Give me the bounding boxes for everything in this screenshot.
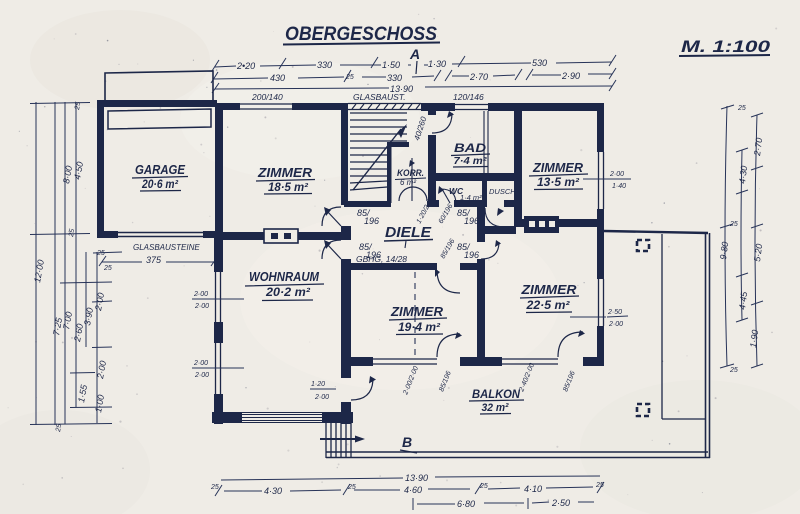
svg-text:ZIMMER: ZIMMER [390, 304, 444, 319]
svg-text:OBERGESCHOSS: OBERGESCHOSS [285, 23, 437, 45]
svg-text:1·50: 1·50 [382, 60, 400, 70]
svg-text:B: B [402, 434, 412, 450]
svg-text:19·4 m²: 19·4 m² [398, 322, 441, 334]
svg-text:2·00: 2·00 [193, 291, 208, 298]
svg-text:20·6 m²: 20·6 m² [141, 179, 179, 191]
svg-text:GBHG, 14/28: GBHG, 14/28 [356, 254, 407, 264]
svg-text:25: 25 [347, 484, 356, 491]
svg-text:4·10: 4·10 [524, 484, 542, 494]
svg-text:GLASBAUSTEINE: GLASBAUSTEINE [133, 243, 200, 252]
svg-text:20·2 m²: 20·2 m² [265, 285, 311, 299]
svg-text:200/140: 200/140 [251, 92, 283, 102]
svg-text:196: 196 [464, 250, 479, 260]
svg-text:196: 196 [364, 216, 379, 226]
svg-text:A: A [409, 46, 420, 62]
svg-text:25: 25 [737, 105, 746, 112]
svg-text:430: 430 [270, 73, 285, 83]
svg-text:25: 25 [345, 74, 354, 81]
svg-text:2·00: 2·00 [608, 321, 623, 328]
svg-text:2·00: 2·00 [609, 171, 624, 178]
svg-text:2·70: 2·70 [469, 72, 488, 82]
svg-text:32 m²: 32 m² [482, 402, 509, 414]
svg-text:4·30: 4·30 [264, 486, 282, 496]
svg-text:13·5 m²: 13·5 m² [537, 177, 580, 189]
svg-text:1·30: 1·30 [428, 59, 446, 69]
svg-text:6·80: 6·80 [457, 499, 475, 509]
svg-text:GLASBAUST.: GLASBAUST. [353, 92, 406, 102]
svg-text:25: 25 [729, 221, 738, 228]
svg-text:WOHNRAUM: WOHNRAUM [249, 269, 320, 284]
svg-text:2·50: 2·50 [607, 309, 622, 316]
svg-text:BAD: BAD [454, 141, 486, 155]
svg-text:2·50: 2·50 [551, 498, 570, 508]
svg-text:BALKON: BALKON [472, 387, 520, 401]
svg-text:GARAGE: GARAGE [135, 162, 185, 177]
svg-text:1·20: 1·20 [311, 381, 325, 388]
svg-text:2·90: 2·90 [561, 71, 580, 81]
svg-text:25: 25 [210, 484, 219, 491]
svg-text:2·00: 2·00 [194, 303, 209, 310]
svg-text:330: 330 [387, 73, 402, 83]
svg-text:2·00: 2·00 [193, 360, 208, 367]
svg-text:25: 25 [103, 265, 112, 272]
svg-text:M. 1:100: M. 1:100 [681, 38, 771, 56]
svg-text:25: 25 [729, 367, 738, 374]
svg-text:ZIMMER: ZIMMER [532, 160, 584, 175]
svg-text:18·5 m²: 18·5 m² [268, 182, 309, 194]
svg-text:330: 330 [317, 60, 332, 70]
svg-text:25: 25 [479, 483, 488, 490]
svg-text:2•20: 2•20 [236, 61, 255, 71]
svg-text:2·00: 2·00 [194, 372, 209, 379]
svg-text:2·00: 2·00 [314, 394, 329, 401]
svg-text:120/146: 120/146 [453, 92, 484, 102]
svg-text:13·90: 13·90 [405, 473, 428, 483]
svg-text:4·60: 4·60 [404, 485, 422, 495]
svg-text:25: 25 [595, 482, 604, 489]
svg-text:DUSCH: DUSCH [489, 187, 516, 196]
svg-text:1·40: 1·40 [612, 183, 626, 190]
svg-text:530: 530 [532, 58, 547, 68]
svg-text:22·5 m²: 22·5 m² [525, 300, 570, 312]
svg-text:196: 196 [366, 250, 381, 260]
svg-text:ZIMMER: ZIMMER [520, 282, 577, 297]
svg-text:375: 375 [146, 255, 162, 265]
svg-text:ZIMMER: ZIMMER [257, 165, 313, 180]
svg-text:196: 196 [464, 216, 479, 226]
svg-text:7·4 m²: 7·4 m² [454, 156, 488, 167]
svg-text:DIELE: DIELE [385, 224, 432, 241]
